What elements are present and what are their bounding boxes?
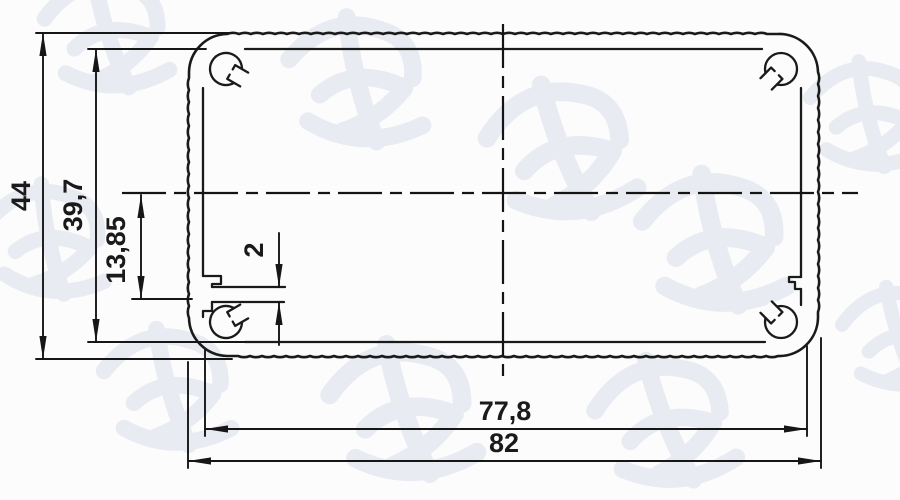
arrowhead bbox=[275, 264, 282, 287]
arrowhead bbox=[784, 425, 807, 432]
corner-screw-boss-top-right bbox=[754, 46, 803, 95]
arrowhead bbox=[137, 276, 144, 299]
arrowhead bbox=[798, 457, 821, 464]
drawing-canvas: 44 39,7 13,85 2 77,8 bbox=[0, 0, 900, 500]
extrusion-profile-drawing: 44 39,7 13,85 2 77,8 bbox=[0, 0, 900, 500]
arrowhead bbox=[188, 457, 211, 464]
dimension-rib-offset: 13,85 bbox=[101, 195, 192, 299]
dimension-label-inner-width: 77,8 bbox=[479, 396, 532, 426]
arrowhead bbox=[92, 49, 99, 72]
arrowhead bbox=[137, 195, 144, 218]
dimension-label-overall-width: 82 bbox=[489, 428, 519, 458]
arrowhead bbox=[275, 302, 282, 325]
arrowhead bbox=[39, 336, 46, 359]
dimension-label-inner-height: 39,7 bbox=[58, 179, 88, 232]
arrowhead bbox=[92, 319, 99, 342]
dimension-rib-thickness: 2 bbox=[239, 233, 279, 345]
dimension-label-overall-height: 44 bbox=[6, 181, 36, 211]
corner-screw-boss-top-left bbox=[204, 47, 253, 94]
dimension-label-rib-offset: 13,85 bbox=[101, 216, 131, 284]
left-rib-step bbox=[203, 276, 221, 287]
arrowhead bbox=[39, 33, 46, 56]
dimension-label-rib-thickness: 2 bbox=[239, 242, 269, 257]
